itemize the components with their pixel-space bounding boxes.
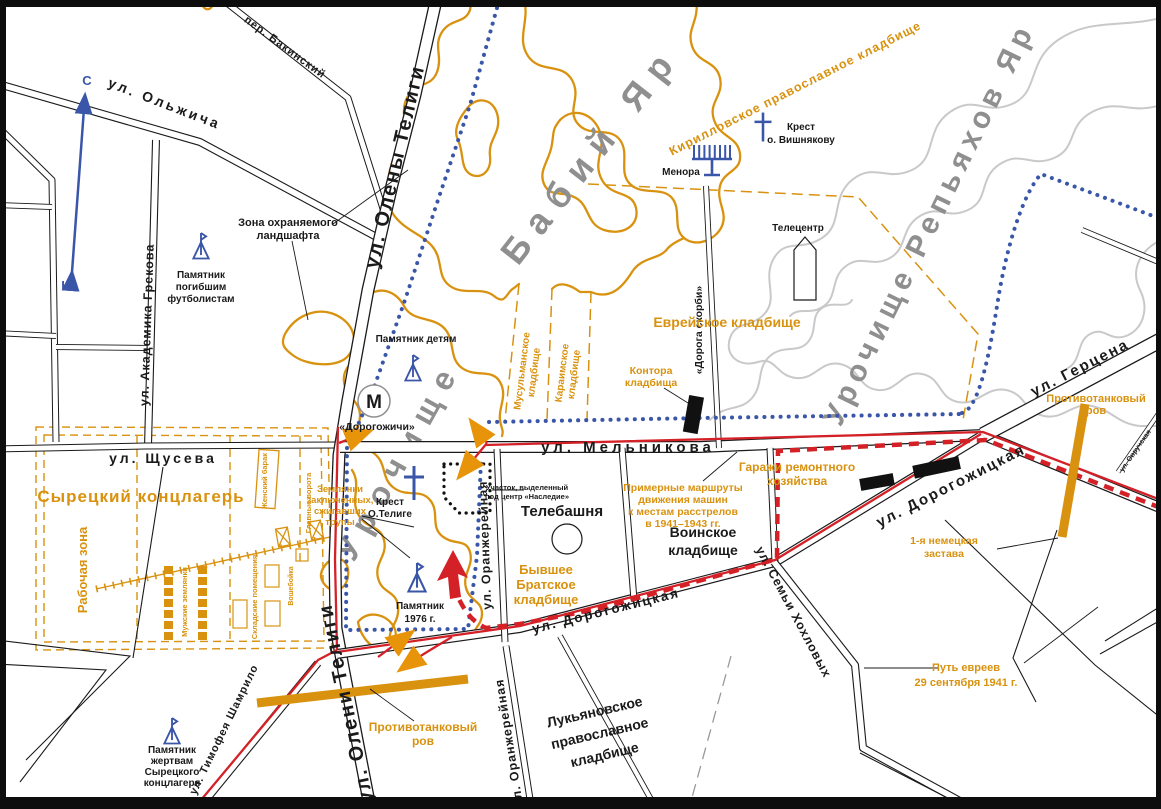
street-label-melnikova: ул. Мельникова: [541, 439, 715, 456]
svg-text:Крест: Крест: [376, 497, 404, 508]
svg-text:застава: застава: [924, 548, 964, 560]
svg-text:Противотанковый: Противотанковый: [369, 720, 477, 734]
svg-text:хозяйства: хозяйства: [767, 474, 828, 488]
street-label-schuseva: ул. Щусева: [109, 450, 217, 466]
label-metro-station: «Дорогожичи»: [339, 421, 415, 433]
svg-text:о. Вишнякову: о. Вишнякову: [767, 135, 835, 146]
label-evreiskoe: Еврейское кладбище: [653, 314, 801, 330]
svg-text:движения машин: движения машин: [638, 494, 728, 506]
label-zhenskiy-barak: Женский барак: [260, 453, 269, 510]
svg-text:трупы: трупы: [325, 517, 354, 528]
label-monument-futbolistam: Памятник погибшим футболистам: [167, 270, 234, 305]
svg-text:сжигавших: сжигавших: [314, 506, 367, 517]
label-kontora: Контора кладбища: [625, 365, 677, 389]
svg-text:заключенных,: заключенных,: [307, 495, 374, 506]
svg-text:Зона охраняемого: Зона охраняемого: [238, 217, 338, 229]
svg-text:погибшим: погибшим: [176, 281, 227, 293]
svg-text:Памятник: Памятник: [396, 601, 445, 612]
svg-text:29 сентября 1941 г.: 29 сентября 1941 г.: [915, 677, 1018, 689]
svg-text:Памятник: Памятник: [148, 745, 197, 756]
svg-text:футболистам: футболистам: [167, 293, 234, 305]
label-voshebojka: Вошебойка: [287, 566, 295, 605]
metro-letter: М: [366, 392, 382, 413]
svg-text:концлагеря: концлагеря: [144, 778, 201, 789]
svg-text:кладбище: кладбище: [514, 592, 579, 607]
svg-text:кладбища: кладбища: [625, 377, 677, 389]
compass-south: Ю: [61, 278, 74, 293]
svg-text:Противотанковый: Противотанковый: [1046, 393, 1145, 405]
label-bratskoe: Бывшее Братское кладбище: [514, 562, 579, 607]
babi-yar-map: Бабий Яр Урочище Урочище Репьяхов Яр: [0, 0, 1161, 809]
svg-text:ландшафта: ландшафта: [256, 230, 320, 242]
svg-text:Землянки: Землянки: [317, 484, 363, 495]
svg-text:жертвам: жертвам: [150, 756, 193, 767]
svg-text:Крест: Крест: [787, 122, 815, 133]
svg-text:Братское: Братское: [516, 577, 575, 592]
svg-text:ров: ров: [412, 734, 434, 748]
label-monument-zhertvam: Памятник жертвам Сырецкого концлагеря: [144, 745, 201, 789]
label-skladskie: Складские помещения: [250, 555, 259, 639]
svg-text:Бывшее: Бывшее: [519, 562, 573, 577]
svg-text:Гаражи ремонтного: Гаражи ремонтного: [739, 460, 855, 474]
svg-text:Примерные маршруты: Примерные маршруты: [623, 482, 743, 494]
svg-text:кладбище: кладбище: [668, 542, 738, 558]
svg-text:под центр «Наследие»: под центр «Наследие»: [485, 492, 569, 501]
svg-text:к местам расстрелов: к местам расстрелов: [628, 506, 738, 518]
label-monument-detyam: Памятник детям: [376, 334, 457, 345]
svg-text:Сырецкого: Сырецкого: [145, 767, 200, 778]
svg-text:Путь евреев: Путь евреев: [932, 662, 1000, 674]
svg-text:Участок, выделенный: Участок, выделенный: [486, 483, 569, 492]
svg-text:1-я немецкая: 1-я немецкая: [910, 535, 978, 547]
label-syretsky-camp: Сырецкий концлагерь: [37, 487, 244, 506]
label-menora: Менора: [662, 167, 700, 178]
svg-text:ров: ров: [1086, 405, 1106, 417]
label-uchastok: Участок, выделенный под центр «Наследие»: [485, 483, 569, 501]
label-rabochaya-zona: Рабочая зона: [75, 526, 90, 613]
svg-text:в 1941–1943 гг.: в 1941–1943 гг.: [645, 518, 721, 530]
compass-north: С: [82, 73, 92, 88]
label-telebashnya: Телебашня: [521, 503, 603, 520]
label-muzhskie-zemlyanki: Мужские землянки: [180, 567, 189, 637]
svg-text:1976 г.: 1976 г.: [405, 614, 436, 625]
svg-text:О.Телиге: О.Телиге: [368, 509, 412, 520]
svg-text:Памятник: Памятник: [177, 270, 226, 281]
label-telecentr: Телецентр: [772, 223, 824, 234]
svg-text:Контора: Контора: [630, 365, 673, 377]
map-canvas: Бабий Яр Урочище Урочище Репьяхов Яр: [0, 0, 1161, 809]
